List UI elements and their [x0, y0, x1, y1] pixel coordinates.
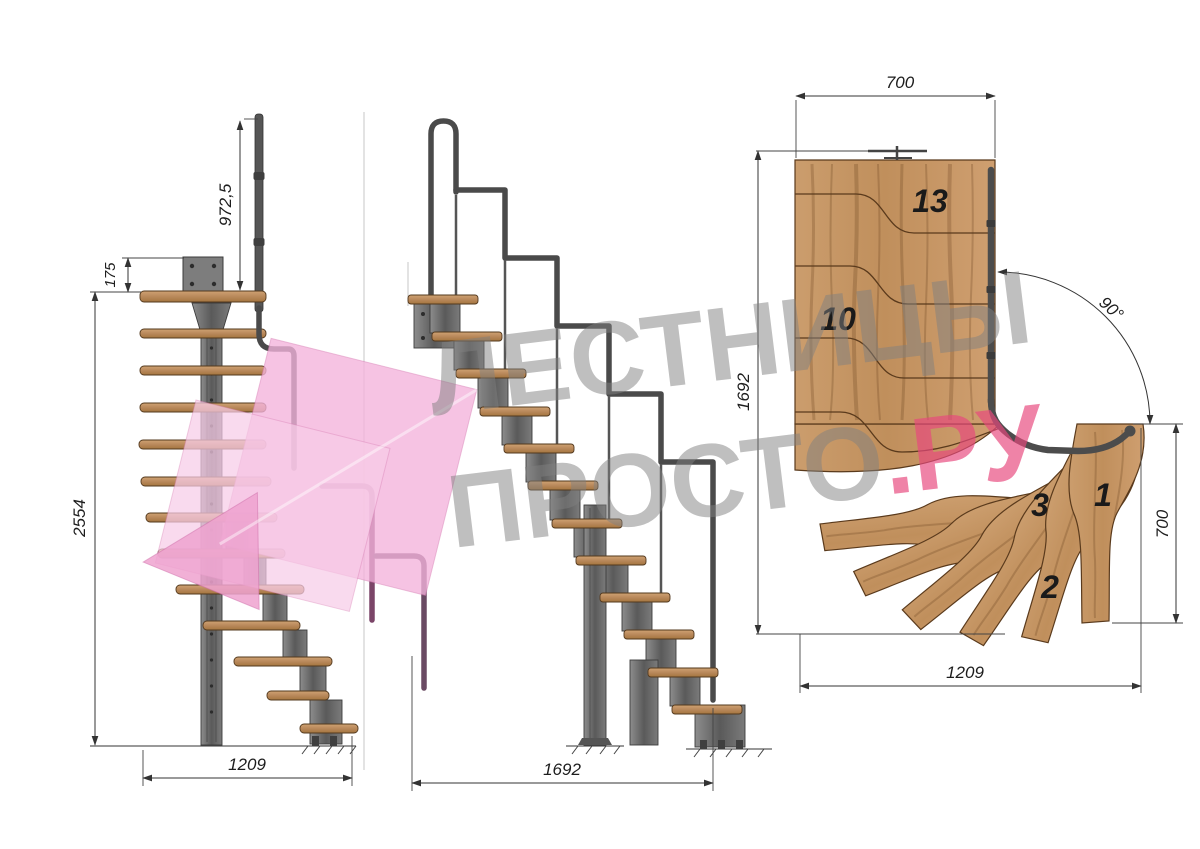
- step-label-1: 1: [1094, 477, 1112, 513]
- dim-total-height-label: 2554: [70, 499, 89, 538]
- dim-front-width-label: 1209: [228, 755, 266, 774]
- staircase-technical-drawing: 972,5 175 2554 1209: [0, 0, 1200, 849]
- top-bracket: [868, 146, 927, 160]
- handrail-loop: [431, 121, 456, 296]
- step-label-13: 13: [912, 183, 948, 219]
- step-label-2: 2: [1040, 569, 1059, 605]
- dim-plan-top-width-label: 700: [886, 73, 915, 92]
- handrail-post: [255, 114, 263, 312]
- dim-turn-angle-label: 90°: [1095, 293, 1127, 324]
- dim-side-length-label: 1692: [543, 760, 581, 779]
- dim-plate-offset-label: 175: [102, 262, 119, 288]
- floor-hatching: [302, 746, 356, 754]
- dim-rail-height-label: 972,5: [216, 183, 235, 226]
- drawing-canvas: 972,5 175 2554 1209: [0, 0, 1200, 849]
- dim-plan-bottom-length-label: 1209: [946, 663, 984, 682]
- mounting-plate: [183, 257, 223, 293]
- dim-plan-right-width-label: 700: [1153, 509, 1172, 538]
